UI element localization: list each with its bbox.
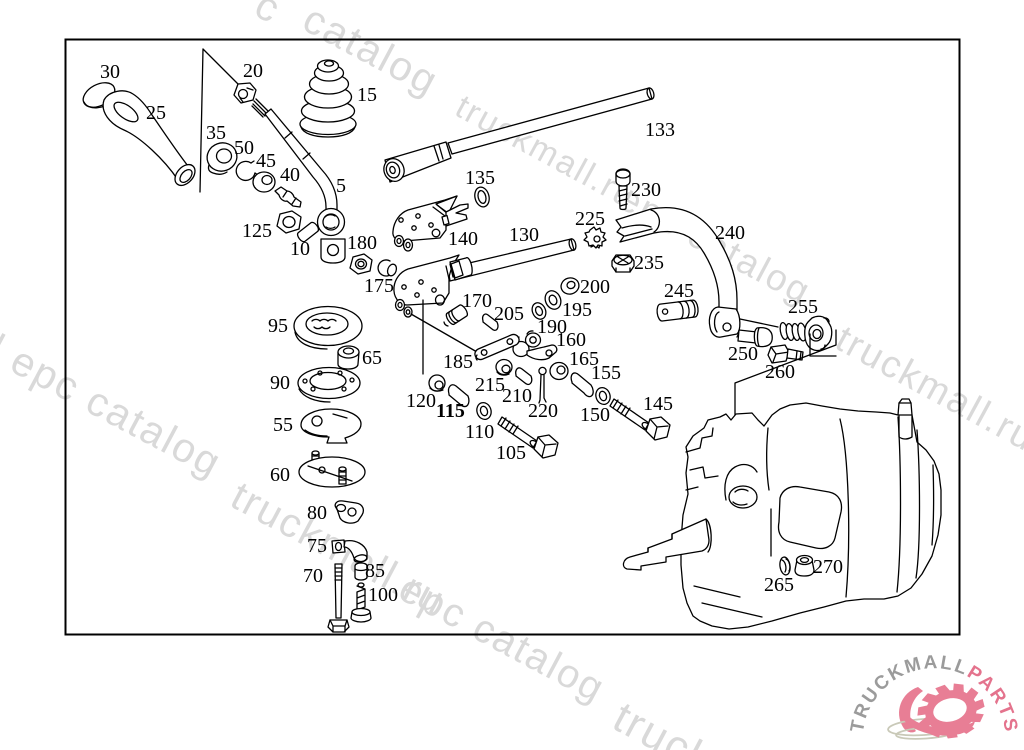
svg-text:215: 215 [475, 374, 505, 396]
svg-text:140: 140 [448, 228, 478, 250]
svg-text:epc catalog: epc catalog [392, 566, 613, 711]
svg-text:225: 225 [575, 208, 605, 230]
svg-text:truckmall: truckmall [605, 693, 799, 750]
svg-text:60: 60 [270, 464, 290, 486]
svg-text:l epc catalog: l epc catalog [0, 325, 230, 486]
svg-text:25: 25 [146, 102, 166, 124]
svg-text:220: 220 [528, 400, 558, 422]
svg-text:150: 150 [580, 404, 610, 426]
svg-text:90: 90 [270, 372, 290, 394]
svg-text:240: 240 [715, 222, 745, 244]
svg-text:130: 130 [509, 224, 539, 246]
svg-text:35: 35 [206, 122, 226, 144]
svg-text:55: 55 [273, 414, 293, 436]
svg-text:15: 15 [357, 84, 377, 106]
svg-text:270: 270 [813, 556, 843, 578]
svg-text:30: 30 [100, 61, 120, 83]
svg-text:170: 170 [462, 290, 492, 312]
svg-text:205: 205 [494, 303, 524, 325]
svg-text:230: 230 [631, 179, 661, 201]
svg-text:40: 40 [280, 164, 300, 186]
svg-text:235: 235 [634, 252, 664, 274]
svg-text:175: 175 [364, 275, 394, 297]
svg-text:265: 265 [764, 574, 794, 596]
svg-text:5: 5 [336, 175, 346, 197]
svg-text:50: 50 [234, 137, 254, 159]
svg-text:200: 200 [580, 276, 610, 298]
svg-text:145: 145 [643, 393, 673, 415]
svg-text:135: 135 [465, 167, 495, 189]
svg-text:260: 260 [765, 361, 795, 383]
svg-text:85: 85 [365, 560, 385, 582]
svg-text:120: 120 [406, 390, 436, 412]
svg-text:80: 80 [307, 502, 327, 524]
svg-text:100: 100 [368, 584, 398, 606]
svg-text:125: 125 [242, 220, 272, 242]
svg-text:250: 250 [728, 343, 758, 365]
svg-text:75: 75 [307, 535, 327, 557]
svg-text:45: 45 [256, 150, 276, 172]
svg-text:180: 180 [347, 232, 377, 254]
svg-text:133: 133 [645, 119, 675, 141]
svg-text:65: 65 [362, 347, 382, 369]
svg-text:245: 245 [664, 280, 694, 302]
svg-text:105: 105 [496, 442, 526, 464]
svg-text:155: 155 [591, 362, 621, 384]
svg-text:20: 20 [243, 60, 263, 82]
svg-text:10: 10 [290, 238, 310, 260]
svg-text:110: 110 [465, 421, 494, 443]
svg-text:185: 185 [443, 351, 473, 373]
svg-text:255: 255 [788, 296, 818, 318]
svg-text:70: 70 [303, 565, 323, 587]
svg-text:c: c [248, 0, 289, 33]
svg-text:115: 115 [436, 400, 465, 422]
svg-text:95: 95 [268, 315, 288, 337]
